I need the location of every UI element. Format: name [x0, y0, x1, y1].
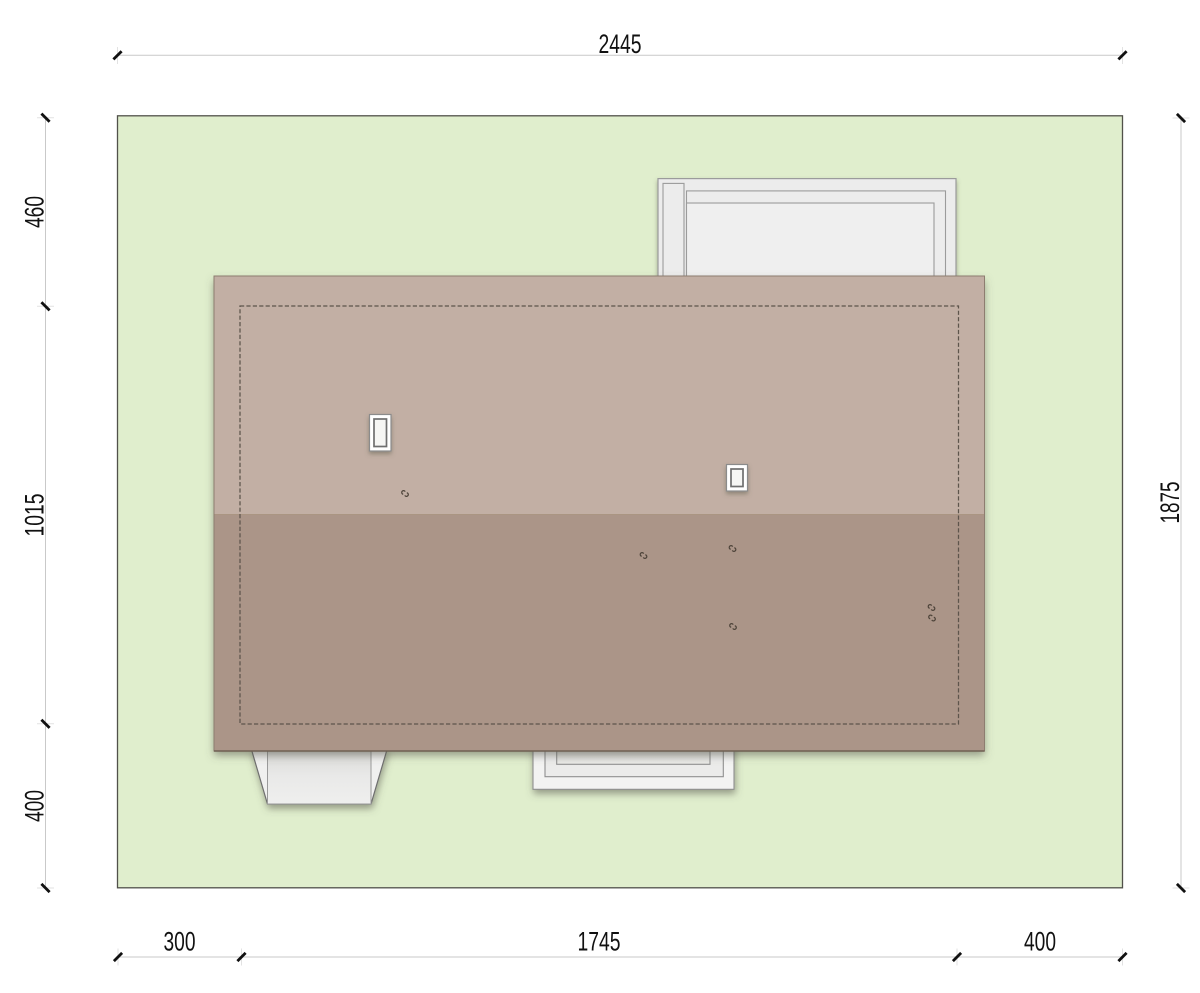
svg-text:400: 400: [20, 790, 50, 822]
svg-text:400: 400: [1024, 927, 1056, 957]
svg-text:1015: 1015: [20, 494, 50, 537]
svg-text:2445: 2445: [599, 29, 642, 59]
svg-text:1875: 1875: [1155, 482, 1185, 524]
svg-text:1745: 1745: [578, 927, 621, 957]
svg-text:460: 460: [20, 196, 50, 228]
svg-text:300: 300: [164, 927, 196, 957]
